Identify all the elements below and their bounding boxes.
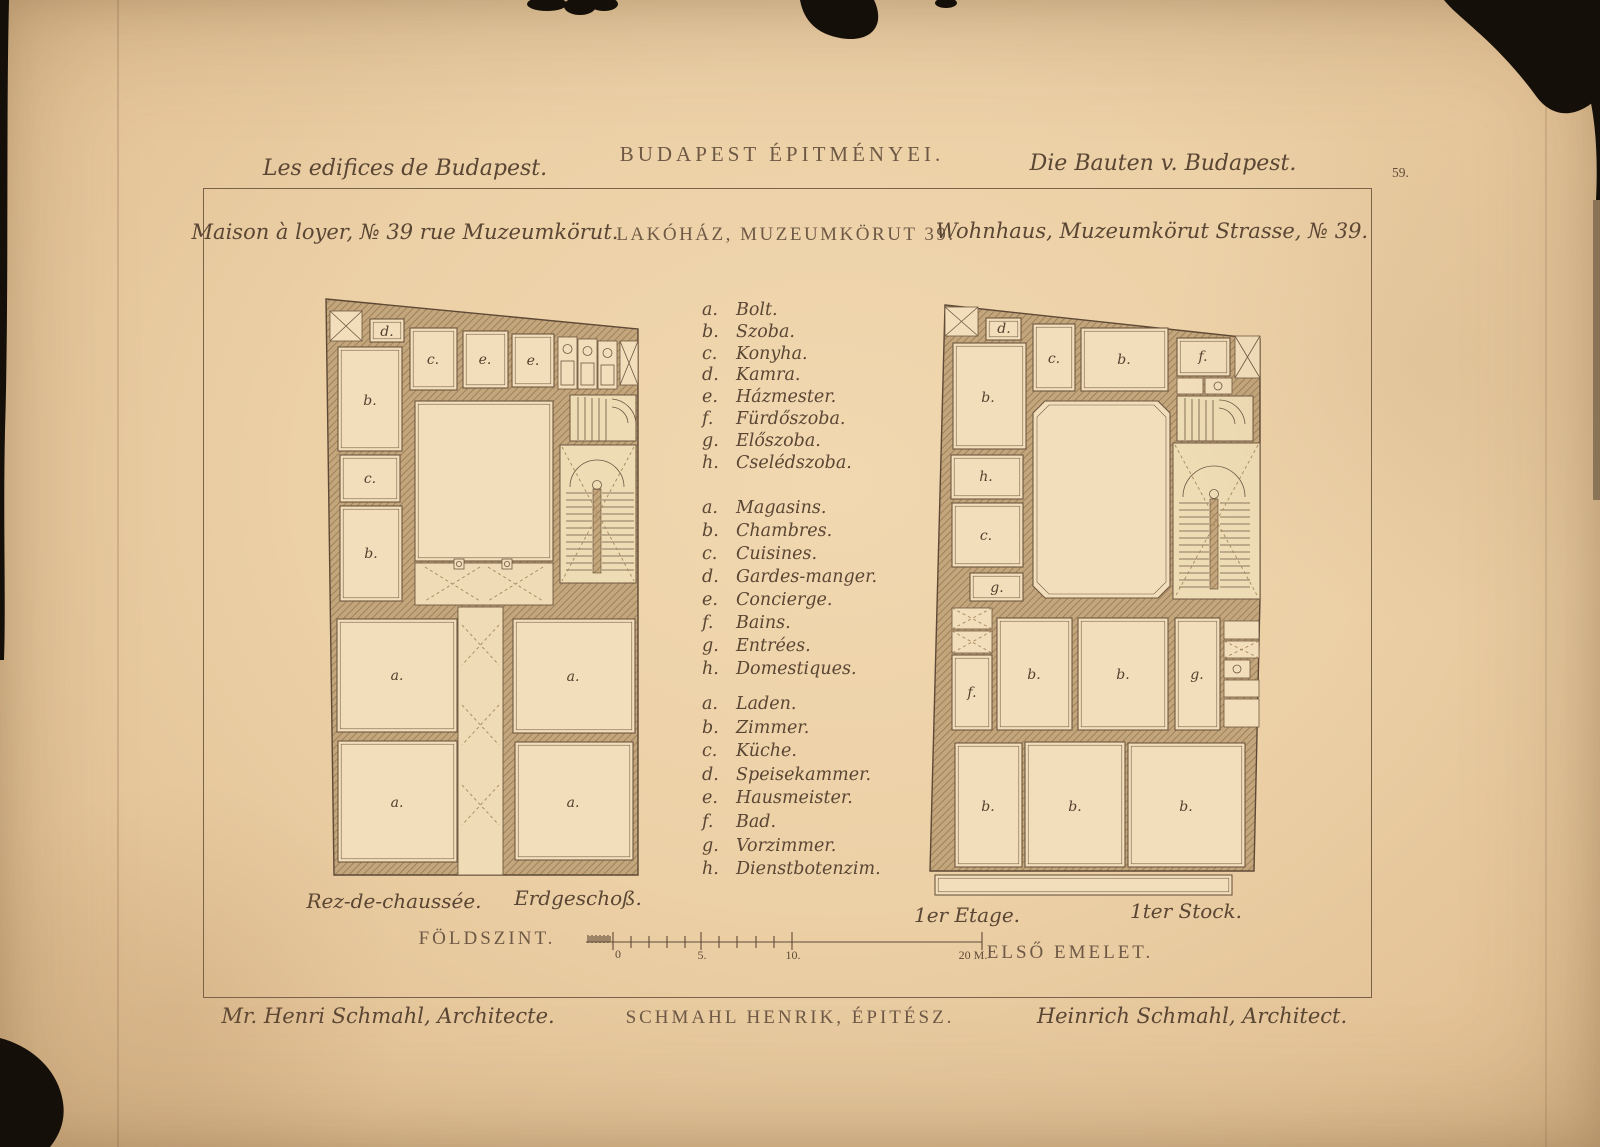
first-courtyard <box>1033 401 1170 598</box>
legend-key: b. <box>702 521 736 544</box>
subtitle-french: Maison à loyer, № 39 rue Muzeumkörut. <box>192 220 619 244</box>
legend-row: c.Konyha. <box>702 344 852 366</box>
legend-key: a. <box>702 300 736 322</box>
legend-label: Előszoba. <box>736 431 821 453</box>
credit-german: Heinrich Schmahl, Architect. <box>1037 1004 1347 1028</box>
legend-label: Zimmer. <box>736 718 809 742</box>
legend-label: Házmester. <box>736 387 836 409</box>
first-service-stair <box>1177 396 1253 441</box>
legend-label: Küche. <box>736 741 797 765</box>
legend-key: e. <box>702 590 736 613</box>
legend-row: d.Speisekammer. <box>702 765 881 789</box>
plate-number: 59. <box>1392 165 1409 181</box>
legend-row: h.Cselédszoba. <box>702 453 852 475</box>
legend-label: Szoba. <box>736 322 795 344</box>
caption-first-hungarian: ELSŐ EMELET. <box>987 942 1154 964</box>
room-label: e. <box>479 352 492 368</box>
legend-label: Magasins. <box>736 498 826 521</box>
room-label: g. <box>1190 667 1203 683</box>
legend-key: c. <box>702 344 736 366</box>
legend-key: f. <box>702 812 736 836</box>
ground-toilets <box>558 337 617 389</box>
legend-key: d. <box>702 567 736 590</box>
room-label: b. <box>1068 799 1081 815</box>
legend-row: g.Előszoba. <box>702 431 852 453</box>
room-label: b. <box>981 799 994 815</box>
legend-row: f.Bains. <box>702 613 877 636</box>
legend-row: a.Laden. <box>702 694 881 718</box>
legend-row: b.Chambres. <box>702 521 877 544</box>
room-label: b. <box>1179 799 1192 815</box>
subtitle-hungarian: LAKÓHÁZ, MUZEUMKÖRUT 39. <box>616 224 955 246</box>
room-label: d. <box>997 321 1010 337</box>
room-label: d. <box>380 324 393 340</box>
room-label: f. <box>966 685 976 701</box>
legend-label: Cselédszoba. <box>736 453 852 475</box>
room-label: a. <box>567 669 580 685</box>
credit-hungarian: SCHMAHL HENRIK, ÉPITÉSZ. <box>626 1007 955 1029</box>
legend-row: c.Küche. <box>702 741 881 765</box>
legend-label: Bolt. <box>736 300 778 322</box>
legend-key: h. <box>702 453 736 475</box>
legend-label: Kamra. <box>736 365 800 387</box>
room-label: b. <box>1117 352 1130 368</box>
legend-label: Entrées. <box>736 636 811 659</box>
paper-crease-left <box>117 0 119 1147</box>
legend-row: b.Szoba. <box>702 322 852 344</box>
room-label: b. <box>981 390 994 406</box>
legend-key: a. <box>702 498 736 521</box>
title-german: Die Bauten v. Budapest. <box>1030 151 1297 176</box>
legend-label: Speisekammer. <box>736 765 871 789</box>
legend-label: Domestiques. <box>736 659 857 682</box>
legend-key: c. <box>702 544 736 567</box>
legend-label: Bains. <box>736 613 791 636</box>
legend-label: Dienstbotenzim. <box>736 859 881 883</box>
scale-bar: 0 5. 10. 20 M. <box>575 922 1005 966</box>
scale-label: 20 M. <box>959 948 988 962</box>
legend-french: a.Magasins. b.Chambres. c.Cuisines. d.Ga… <box>702 498 877 682</box>
legend-row: b.Zimmer. <box>702 718 881 742</box>
credit-french: Mr. Henri Schmahl, Architecte. <box>221 1004 554 1028</box>
room-label: c. <box>427 352 439 368</box>
legend-label: Fürdőszoba. <box>736 409 845 431</box>
paper-crease-right <box>1545 0 1547 1147</box>
legend-row: a.Magasins. <box>702 498 877 521</box>
legend-label: Cuisines. <box>736 544 817 567</box>
title-hungarian: BUDAPEST ÉPITMÉNYEI. <box>620 142 945 167</box>
subtitle-german: Wohnhaus, Muzeumkörut Strasse, № 39. <box>936 219 1368 243</box>
legend-key: d. <box>702 365 736 387</box>
room-label: g. <box>990 580 1003 596</box>
legend-row: e.Hausmeister. <box>702 788 881 812</box>
caption-ground-german: Erdgeschoß. <box>514 886 642 910</box>
legend-label: Concierge. <box>736 590 832 613</box>
legend-row: d.Gardes-manger. <box>702 567 877 590</box>
legend-label: Gardes-manger. <box>736 567 877 590</box>
ground-service-stair <box>570 395 636 441</box>
room-label: a. <box>391 795 404 811</box>
scale-label: 5. <box>698 948 707 962</box>
legend-row: h.Dienstbotenzim. <box>702 859 881 883</box>
room-label: a. <box>567 795 580 811</box>
legend-row: e.Házmester. <box>702 387 852 409</box>
legend-row: a.Bolt. <box>702 300 852 322</box>
legend-key: h. <box>702 859 736 883</box>
ground-main-staircase <box>560 445 636 583</box>
room-label: b. <box>1116 667 1129 683</box>
legend-label: Chambres. <box>736 521 832 544</box>
legend-key: e. <box>702 788 736 812</box>
legend-row: c.Cuisines. <box>702 544 877 567</box>
room-label: b. <box>363 393 376 409</box>
legend-row: g.Vorzimmer. <box>702 836 881 860</box>
legend-key: g. <box>702 431 736 453</box>
legend-row: e.Concierge. <box>702 590 877 613</box>
caption-first-german: 1ter Stock. <box>1130 899 1242 923</box>
legend-row: d.Kamra. <box>702 365 852 387</box>
first-main-staircase <box>1173 443 1260 599</box>
legend-label: Konyha. <box>736 344 808 366</box>
caption-ground-hungarian: FÖLDSZINT. <box>419 928 556 950</box>
room-label: c. <box>1048 351 1060 367</box>
title-french: Les edifices de Budapest. <box>263 156 547 181</box>
legend-label: Hausmeister. <box>736 788 853 812</box>
room-label: e. <box>527 353 540 369</box>
legend-label: Laden. <box>736 694 796 718</box>
legend-key: d. <box>702 765 736 789</box>
room-label: b. <box>364 546 377 562</box>
legend-key: g. <box>702 636 736 659</box>
legend-key: f. <box>702 613 736 636</box>
legend-key: a. <box>702 694 736 718</box>
legend-key: b. <box>702 322 736 344</box>
room-label: f. <box>1197 349 1207 365</box>
legend-german: a.Laden. b.Zimmer. c.Küche. d.Speisekamm… <box>702 694 881 883</box>
legend-key: c. <box>702 741 736 765</box>
legend-label: Vorzimmer. <box>736 836 836 860</box>
scale-label: 0 <box>615 947 621 961</box>
room-label: b. <box>1027 667 1040 683</box>
room-label: c. <box>980 528 992 544</box>
legend-row: f.Bad. <box>702 812 881 836</box>
legend-row: f.Fürdőszoba. <box>702 409 852 431</box>
caption-ground-french: Rez-de-chaussée. <box>306 889 481 913</box>
legend-row: g.Entrées. <box>702 636 877 659</box>
legend-key: b. <box>702 718 736 742</box>
legend-label: Bad. <box>736 812 776 836</box>
first-floor-plan: d. b. h. c. g. c. b. f. f. b. b. g. b. b… <box>923 297 1263 902</box>
legend-key: e. <box>702 387 736 409</box>
legend-key: g. <box>702 836 736 860</box>
room-label: c. <box>364 471 376 487</box>
scale-label: 10. <box>786 948 801 962</box>
room-label: a. <box>391 668 404 684</box>
legend-key: f. <box>702 409 736 431</box>
room-label: h. <box>979 469 992 485</box>
ground-floor-plan: d. b. c. b. c. e. e. a. a. a. a. <box>320 295 645 885</box>
legend-key: h. <box>702 659 736 682</box>
legend-hungarian: a.Bolt. b.Szoba. c.Konyha. d.Kamra. e.Há… <box>702 300 852 474</box>
legend-row: h.Domestiques. <box>702 659 877 682</box>
